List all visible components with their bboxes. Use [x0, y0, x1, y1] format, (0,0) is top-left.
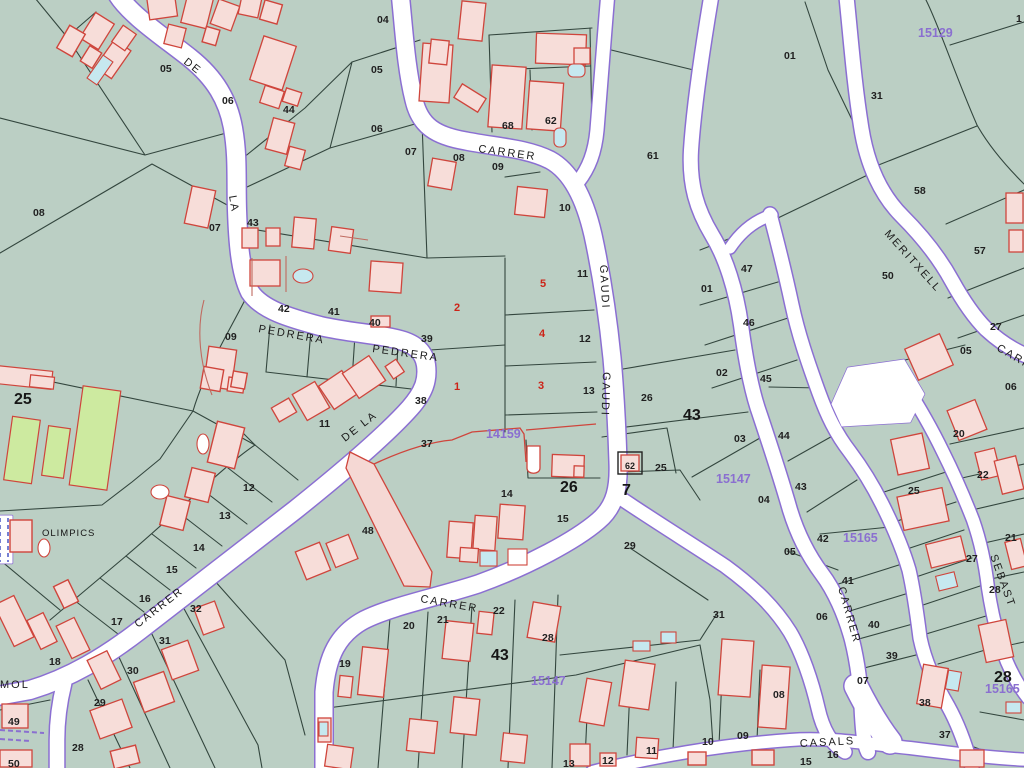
svg-text:16: 16 — [139, 593, 151, 605]
svg-text:44: 44 — [778, 430, 790, 442]
svg-text:40: 40 — [868, 619, 880, 631]
svg-text:44: 44 — [283, 104, 295, 116]
svg-text:5: 5 — [540, 278, 546, 290]
svg-text:38: 38 — [415, 395, 427, 407]
svg-text:14159: 14159 — [486, 427, 521, 441]
svg-text:61: 61 — [647, 150, 659, 162]
svg-text:37: 37 — [421, 438, 433, 450]
svg-text:3: 3 — [538, 380, 544, 392]
svg-text:08: 08 — [773, 689, 785, 701]
svg-text:49: 49 — [8, 716, 20, 728]
svg-text:08: 08 — [33, 207, 45, 219]
svg-text:22: 22 — [493, 605, 505, 617]
svg-text:25: 25 — [908, 485, 920, 497]
svg-text:4: 4 — [539, 328, 546, 340]
svg-text:20: 20 — [953, 428, 965, 440]
svg-text:18: 18 — [49, 656, 61, 668]
svg-text:07: 07 — [857, 675, 869, 687]
svg-text:28: 28 — [542, 632, 554, 644]
svg-text:04: 04 — [758, 494, 770, 506]
svg-text:43: 43 — [247, 217, 259, 229]
svg-text:37: 37 — [939, 729, 951, 741]
svg-text:06: 06 — [371, 123, 383, 135]
svg-text:12: 12 — [579, 333, 591, 345]
svg-text:06: 06 — [816, 611, 828, 623]
svg-text:06: 06 — [222, 95, 234, 107]
svg-text:15147: 15147 — [531, 674, 566, 688]
svg-text:11: 11 — [319, 418, 330, 430]
svg-text:12: 12 — [243, 482, 255, 494]
svg-text:58: 58 — [914, 185, 926, 197]
svg-text:30: 30 — [127, 665, 139, 677]
svg-text:GAUDI: GAUDI — [597, 265, 611, 310]
svg-text:28: 28 — [72, 742, 84, 754]
svg-text:09: 09 — [492, 161, 504, 173]
svg-text:21: 21 — [1005, 532, 1017, 544]
svg-text:25: 25 — [14, 391, 32, 408]
svg-text:48: 48 — [362, 525, 374, 537]
svg-text:62: 62 — [625, 461, 635, 471]
svg-text:27: 27 — [966, 553, 978, 565]
svg-text:11: 11 — [646, 745, 657, 757]
svg-text:39: 39 — [886, 650, 898, 662]
svg-text:16: 16 — [827, 749, 839, 761]
svg-text:7: 7 — [622, 482, 631, 499]
svg-text:15165: 15165 — [985, 682, 1020, 696]
svg-text:43: 43 — [795, 481, 807, 493]
svg-text:21: 21 — [437, 614, 449, 626]
svg-text:09: 09 — [737, 730, 749, 742]
svg-text:07: 07 — [209, 222, 221, 234]
svg-text:OLIMPICS: OLIMPICS — [42, 528, 95, 539]
svg-text:2: 2 — [454, 302, 460, 314]
svg-text:14: 14 — [193, 542, 205, 554]
svg-text:10: 10 — [559, 202, 571, 214]
svg-text:43: 43 — [683, 407, 701, 424]
svg-text:57: 57 — [974, 245, 986, 257]
svg-text:15: 15 — [166, 564, 178, 576]
svg-text:50: 50 — [8, 758, 20, 768]
svg-text:26: 26 — [560, 479, 578, 496]
svg-text:68: 68 — [502, 120, 514, 132]
svg-text:05: 05 — [371, 64, 383, 76]
svg-text:15: 15 — [557, 513, 569, 525]
svg-text:15165: 15165 — [843, 531, 878, 545]
svg-text:47: 47 — [741, 263, 753, 275]
svg-text:41: 41 — [328, 306, 340, 318]
svg-text:15: 15 — [800, 756, 812, 768]
svg-text:08: 08 — [453, 152, 465, 164]
svg-text:17: 17 — [111, 616, 123, 628]
svg-text:19: 19 — [339, 658, 351, 670]
svg-text:31: 31 — [159, 635, 171, 647]
svg-text:41: 41 — [842, 575, 854, 587]
svg-text:28: 28 — [989, 584, 1001, 596]
svg-text:01: 01 — [784, 50, 796, 62]
svg-text:15129: 15129 — [918, 26, 953, 40]
svg-text:01: 01 — [701, 283, 713, 295]
svg-text:15147: 15147 — [716, 472, 751, 486]
svg-text:39: 39 — [421, 333, 433, 345]
svg-text:14: 14 — [501, 488, 513, 500]
svg-text:13: 13 — [583, 385, 595, 397]
svg-text:05: 05 — [160, 63, 172, 75]
svg-text:43: 43 — [491, 647, 509, 664]
svg-text:42: 42 — [278, 303, 290, 315]
svg-text:12: 12 — [602, 755, 614, 767]
svg-text:03: 03 — [734, 433, 746, 445]
svg-text:05: 05 — [784, 546, 796, 558]
svg-text:26: 26 — [641, 392, 653, 404]
svg-text:MOL: MOL — [0, 679, 30, 691]
svg-text:38: 38 — [919, 697, 931, 709]
svg-text:32: 32 — [190, 603, 202, 615]
svg-text:13: 13 — [563, 758, 575, 768]
svg-text:11: 11 — [577, 268, 588, 280]
svg-text:05: 05 — [960, 345, 972, 357]
svg-text:29: 29 — [94, 697, 106, 709]
svg-text:25: 25 — [655, 462, 667, 474]
svg-text:07: 07 — [405, 146, 417, 158]
svg-text:45: 45 — [760, 373, 772, 385]
svg-text:42: 42 — [817, 533, 829, 545]
svg-text:22: 22 — [977, 469, 989, 481]
svg-text:62: 62 — [545, 115, 557, 127]
svg-text:20: 20 — [403, 620, 415, 632]
svg-text:09: 09 — [225, 331, 237, 343]
svg-text:02: 02 — [716, 367, 728, 379]
svg-text:27: 27 — [990, 321, 1002, 333]
svg-text:10: 10 — [702, 736, 714, 748]
svg-text:06: 06 — [1005, 381, 1017, 393]
svg-text:46: 46 — [743, 317, 755, 329]
svg-text:29: 29 — [624, 540, 636, 552]
svg-text:1: 1 — [1016, 13, 1022, 25]
svg-text:GAUDI: GAUDI — [598, 372, 612, 417]
svg-text:04: 04 — [377, 14, 389, 26]
svg-text:31: 31 — [871, 90, 883, 102]
svg-text:1: 1 — [454, 381, 460, 393]
svg-text:13: 13 — [219, 510, 231, 522]
svg-text:31: 31 — [713, 609, 725, 621]
svg-text:40: 40 — [369, 317, 381, 329]
svg-text:50: 50 — [882, 270, 894, 282]
